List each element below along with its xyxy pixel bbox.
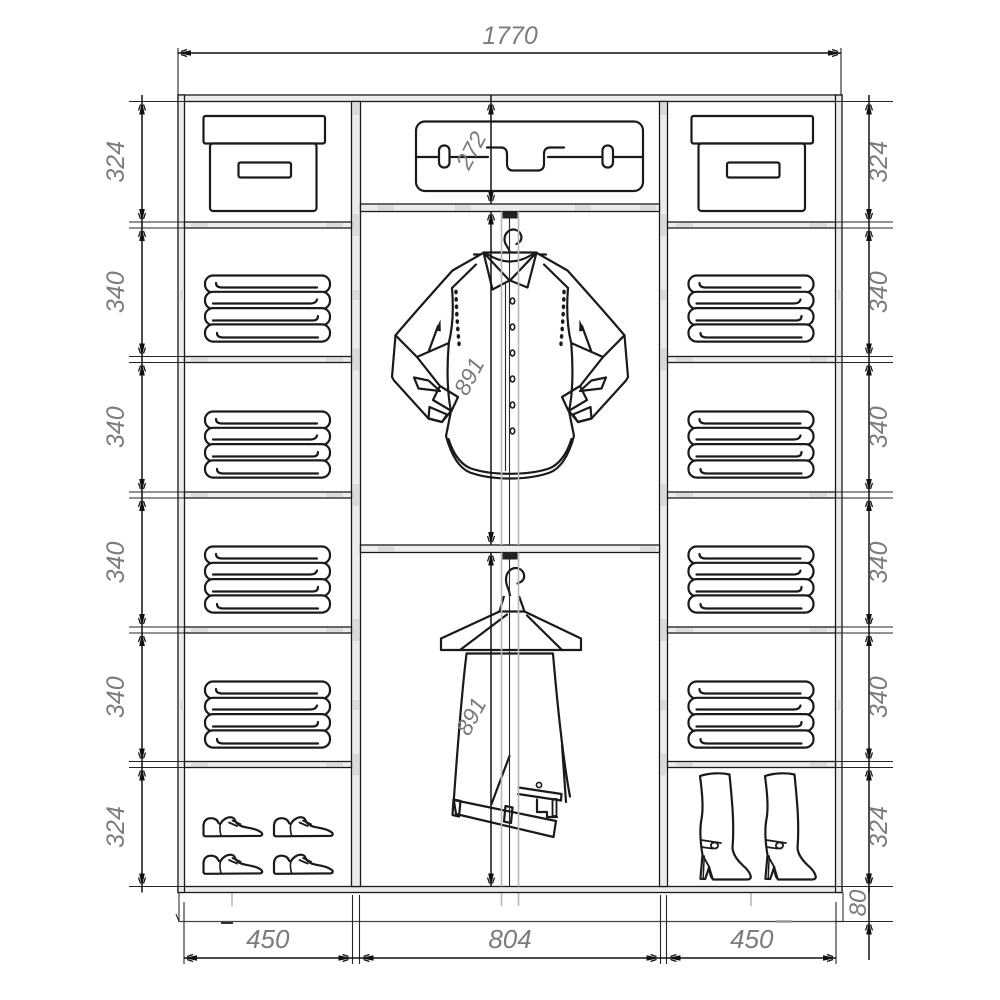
svg-text:340: 340 <box>865 542 893 584</box>
svg-text:340: 340 <box>102 542 130 584</box>
svg-text:324: 324 <box>102 806 130 848</box>
svg-text:1770: 1770 <box>482 22 538 50</box>
svg-text:450: 450 <box>246 924 290 954</box>
svg-text:340: 340 <box>102 676 130 718</box>
svg-text:340: 340 <box>102 406 130 448</box>
svg-text:324: 324 <box>102 141 130 183</box>
svg-text:450: 450 <box>730 924 774 954</box>
svg-text:340: 340 <box>102 271 130 313</box>
svg-text:340: 340 <box>865 271 893 313</box>
svg-text:324: 324 <box>865 141 893 183</box>
svg-text:80: 80 <box>845 889 872 916</box>
svg-text:340: 340 <box>865 676 893 718</box>
svg-text:324: 324 <box>865 806 893 848</box>
svg-text:804: 804 <box>488 924 531 954</box>
svg-text:340: 340 <box>865 406 893 448</box>
